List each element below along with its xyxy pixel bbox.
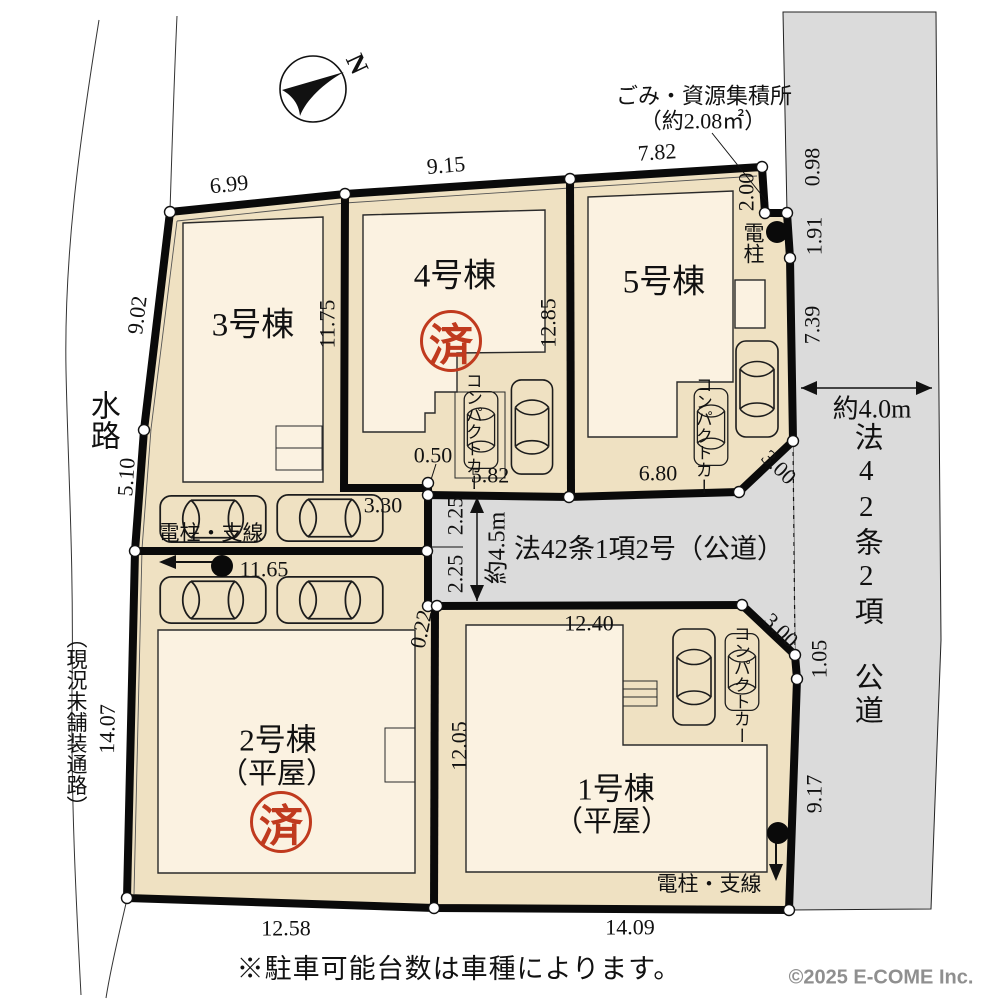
dim-bottom-2: 14.09 (605, 915, 655, 938)
pole-wire-label-west: 電柱・支線 (159, 522, 264, 544)
dim-lot3-east: 11.75 (315, 300, 338, 349)
center-road-width: 約4.5m (485, 512, 510, 585)
dim-ne-1: 0.98 (800, 148, 823, 187)
dim-lot4-south: 3.30 (364, 493, 403, 516)
dim-west-1: 9.02 (123, 294, 151, 335)
dim-ne-3: 2.00 (734, 173, 757, 212)
building-1-type: （平屋） (554, 807, 670, 837)
building-2-type: （平屋） (219, 759, 335, 789)
parking-note: ※駐車可能台数は車種によります。 (237, 955, 682, 983)
dim-top-3: 7.82 (637, 139, 677, 165)
lot-divider-4-5 (570, 179, 571, 493)
dim-west-3: 14.07 (95, 704, 119, 754)
building-5-label: 5号棟 (623, 266, 706, 301)
waterway-label: 水路 (86, 390, 118, 450)
dim-se-1: 1.05 (807, 640, 830, 679)
dim-top-2: 9.15 (426, 152, 466, 178)
east-road-name: 法42条2項 公道 (851, 422, 881, 728)
dim-bottom-1: 12.58 (261, 916, 311, 939)
building-3-label: 3号棟 (212, 309, 295, 344)
utility-pole-dot (211, 555, 233, 577)
east-road-width: 約4.0m (833, 395, 912, 422)
compact-car-label: コンパクトカー (463, 372, 481, 464)
compact-car-label: コンパクトカー (731, 625, 749, 717)
garbage-station-area: （約2.08㎡） (640, 109, 767, 132)
lot-divider-3-4 (344, 194, 345, 488)
dim-top-1: 6.99 (209, 171, 250, 198)
site-plan: N ごみ・資源集積所 （約2.08㎡） 水路 （現況未舗装通路） 電柱 電柱・支… (0, 0, 1000, 1000)
building-4-label: 4号棟 (414, 260, 497, 295)
sold-stamp-building-2: 済 (250, 791, 312, 853)
pole-wire-label-south: 電柱・支線 (657, 873, 762, 895)
dim-lot-divider-row: 11.65 (240, 557, 289, 580)
compact-car-label: コンパクトカー (693, 376, 711, 468)
center-road-south-edge (437, 605, 742, 606)
dim-lot1-west: 12.05 (447, 721, 470, 771)
north-compass-icon (280, 56, 346, 122)
building-5-annex (735, 280, 765, 328)
lot-divider-2-1 (434, 606, 435, 908)
dim-road-jog: 0.50 (414, 443, 453, 466)
dim-road-half-1: 2.25 (443, 497, 466, 536)
dim-lot1-north: 12.40 (564, 611, 614, 634)
dim-se-2: 9.17 (802, 775, 825, 814)
dim-lot4-east: 12.85 (536, 298, 559, 348)
dim-road-top-1: 5.82 (471, 463, 510, 486)
center-road-name: 法42条1項2号（公道） (514, 535, 784, 563)
sold-stamp-building-4: 済 (420, 310, 482, 372)
unpaved-path-label: （現況未舗装通路） (65, 628, 87, 817)
dim-east-1: 7.39 (800, 306, 823, 345)
utility-pole-dot (766, 221, 788, 243)
building-1-label: 1号棟 (577, 774, 655, 807)
copyright: ©2025 E-COME Inc. (789, 968, 974, 989)
building-2-label: 2号棟 (239, 725, 317, 758)
dim-ne-2: 1.91 (802, 217, 825, 256)
dim-west-2: 5.10 (113, 457, 139, 497)
garbage-station-label: ごみ・資源集積所 (616, 84, 792, 107)
dim-road-top-2: 6.80 (639, 461, 678, 484)
utility-pole-dot (767, 822, 789, 844)
building-3-footprint (183, 217, 323, 482)
pole-label-top: 電柱 (742, 222, 764, 264)
dim-road-half-2: 2.25 (443, 555, 466, 594)
